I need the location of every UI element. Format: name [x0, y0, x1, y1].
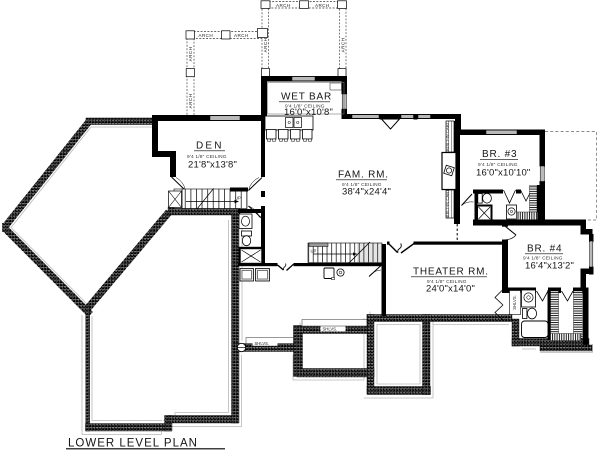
- svg-text:ARCH: ARCH: [276, 3, 291, 8]
- svg-text:FAM. RM.: FAM. RM.: [338, 170, 389, 181]
- svg-text:21'8"x13'8": 21'8"x13'8": [188, 160, 237, 171]
- svg-text:16'0"x10'10": 16'0"x10'10": [476, 168, 531, 179]
- svg-text:ARCH: ARCH: [263, 38, 268, 53]
- svg-text:UP: UP: [235, 196, 241, 201]
- svg-text:24'0"x14'0": 24'0"x14'0": [426, 284, 475, 295]
- svg-text:16'0"x10'8": 16'0"x10'8": [284, 107, 333, 118]
- svg-text:SHLVS.: SHLVS.: [323, 327, 338, 332]
- svg-text:BR. #3: BR. #3: [482, 149, 517, 160]
- svg-text:UP: UP: [311, 249, 317, 254]
- svg-text:ARCH: ARCH: [341, 38, 346, 53]
- svg-text:BR. #4: BR. #4: [527, 244, 562, 255]
- svg-text:ARCH: ARCH: [315, 3, 330, 8]
- svg-text:THEATER RM.: THEATER RM.: [413, 267, 489, 278]
- svg-text:ARCH: ARCH: [188, 94, 193, 109]
- svg-text:LOWER LEVEL PLAN: LOWER LEVEL PLAN: [68, 438, 198, 450]
- svg-text:WET BAR: WET BAR: [281, 92, 332, 103]
- svg-text:ARCH: ARCH: [188, 47, 193, 62]
- svg-text:BUILT-IN CABT: BUILT-IN CABT: [445, 121, 450, 151]
- svg-text:SHLVS.: SHLVS.: [255, 341, 270, 346]
- svg-text:16'4"x13'2": 16'4"x13'2": [525, 261, 574, 272]
- svg-text:DEN: DEN: [196, 141, 224, 152]
- svg-text:ARCH: ARCH: [199, 33, 214, 38]
- svg-text:38'4"x24'4": 38'4"x24'4": [342, 187, 391, 198]
- svg-text:SHLVS.: SHLVS.: [512, 295, 517, 310]
- svg-text:BUILT-IN CABT: BUILT-IN CABT: [445, 189, 450, 219]
- svg-text:ARCH: ARCH: [234, 33, 249, 38]
